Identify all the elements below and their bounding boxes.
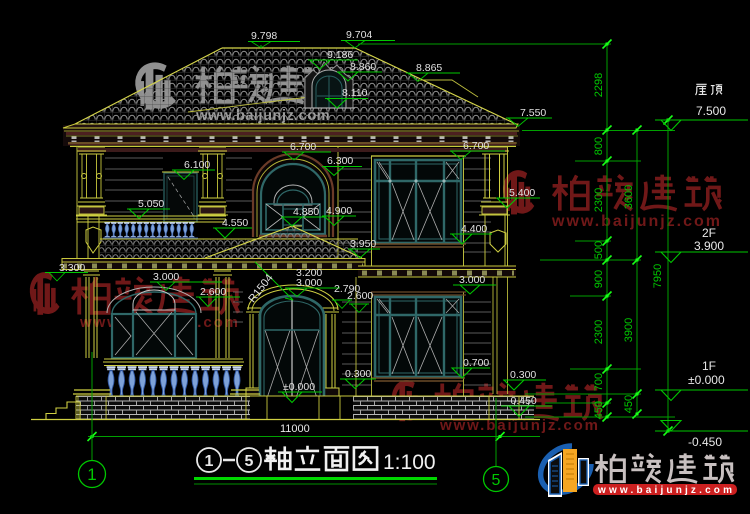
svg-text:800: 800	[593, 137, 605, 155]
svg-text:8.860: 8.860	[350, 61, 376, 73]
svg-text:1: 1	[205, 453, 214, 470]
svg-text:7950: 7950	[652, 264, 664, 288]
svg-text:±0.000: ±0.000	[283, 381, 315, 393]
svg-text:8.865: 8.865	[416, 62, 442, 74]
svg-text:4.900: 4.900	[326, 205, 352, 217]
svg-text:9.186: 9.186	[327, 49, 353, 61]
svg-text:3.000: 3.000	[296, 277, 322, 289]
svg-text:700: 700	[593, 373, 605, 391]
svg-text:5: 5	[492, 472, 501, 489]
svg-text:8.110: 8.110	[342, 87, 368, 99]
svg-text:9.704: 9.704	[346, 29, 372, 41]
svg-text:±0.000: ±0.000	[688, 373, 725, 387]
svg-text:2298: 2298	[593, 73, 605, 97]
svg-text:4.400: 4.400	[461, 223, 487, 235]
svg-text:5.050: 5.050	[138, 198, 164, 210]
svg-text:900: 900	[593, 270, 605, 288]
svg-text:7.500: 7.500	[696, 104, 726, 118]
svg-text:3.000: 3.000	[153, 271, 179, 283]
svg-text:3.900: 3.900	[694, 239, 724, 253]
svg-text:0.700: 0.700	[463, 357, 489, 369]
svg-text:6.300: 6.300	[327, 155, 353, 167]
svg-text:3.000: 3.000	[459, 274, 485, 286]
svg-text:1: 1	[87, 465, 96, 484]
svg-text:3900: 3900	[623, 318, 635, 342]
svg-text:0.300: 0.300	[510, 369, 536, 381]
svg-text:7.550: 7.550	[520, 107, 546, 119]
svg-text:450: 450	[623, 395, 635, 413]
svg-text:2F: 2F	[702, 226, 716, 240]
svg-text:9.798: 9.798	[251, 30, 277, 42]
svg-text:6.100: 6.100	[184, 159, 210, 171]
svg-text:11000: 11000	[280, 423, 310, 435]
svg-text:4.850: 4.850	[293, 206, 319, 218]
svg-text:4.550: 4.550	[222, 217, 248, 229]
svg-text:-0.450: -0.450	[507, 395, 537, 407]
svg-text:6.700: 6.700	[463, 140, 489, 152]
svg-text:450: 450	[593, 401, 605, 419]
svg-text:3.950: 3.950	[350, 238, 376, 250]
svg-text:1F: 1F	[702, 359, 716, 373]
svg-text:6.700: 6.700	[290, 141, 316, 153]
svg-text:5: 5	[245, 453, 254, 470]
svg-text:5.400: 5.400	[509, 187, 535, 199]
svg-text:500: 500	[593, 241, 605, 259]
svg-text:-0.450: -0.450	[688, 435, 722, 449]
svg-text:3600: 3600	[623, 185, 635, 209]
svg-text:1:100: 1:100	[383, 451, 436, 474]
svg-text:0.300: 0.300	[345, 368, 371, 380]
svg-text:2.600: 2.600	[200, 286, 226, 298]
svg-text:2300: 2300	[593, 188, 605, 212]
svg-text:2300: 2300	[593, 320, 605, 344]
